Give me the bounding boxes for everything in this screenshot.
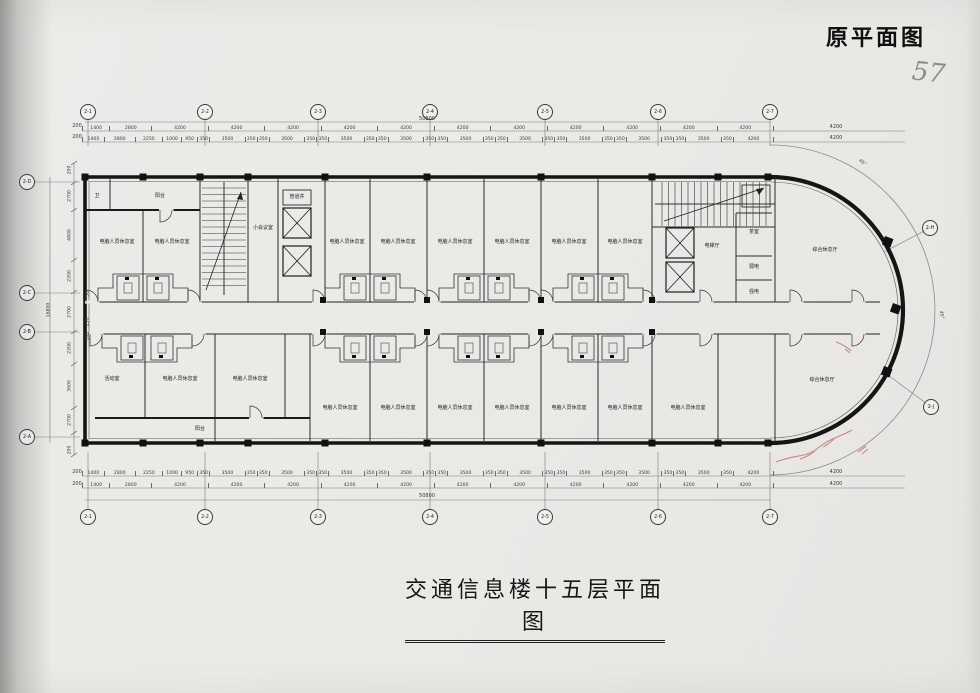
room-label: 综合休息厅 <box>812 247 837 253</box>
dimension-value: 4200 <box>717 126 775 131</box>
room-label: 电脑人员休息室 <box>437 405 472 411</box>
dimension-value: 350 <box>364 137 376 142</box>
dimension-value: 3500 <box>626 137 661 142</box>
dimension-value: 4200 <box>547 483 604 488</box>
dimension-value: 4200 <box>490 483 547 488</box>
dimension-value: 1400 <box>82 471 104 476</box>
dimension-value: 3500 <box>566 471 601 476</box>
dimension-value: 350 <box>721 137 733 142</box>
dimension-value: 950 <box>181 137 197 142</box>
bottom-bay-dimensions: 1400280042004200420042004200420042004200… <box>82 480 774 488</box>
axis-bubble-top: 2-5 <box>537 104 553 120</box>
axis-bubble-bottom: 2-7 <box>762 509 778 525</box>
dimension-value: 350 <box>673 471 685 476</box>
dimension-value: 4200 <box>264 483 321 488</box>
dimension-value: 4200 <box>717 483 775 488</box>
dimension-label: 50800 <box>419 116 435 122</box>
dimension-value: 4200 <box>733 137 774 142</box>
axis-bubble-bottom: 2-2 <box>197 509 213 525</box>
dimension-value: 350 <box>245 471 257 476</box>
dimension-label: 200 <box>72 134 82 140</box>
room-label: 茶室 <box>749 229 759 235</box>
dimension-value: 350 <box>316 471 328 476</box>
dimension-value: 350 <box>483 137 495 142</box>
left-dimension-value: 2200 <box>68 342 73 354</box>
axis-bubble-bottom: 2-5 <box>537 509 553 525</box>
dimension-label: 45° <box>857 158 866 167</box>
room-label: 电脑人员休息室 <box>232 376 267 382</box>
plan-annotation-layer: 2-12-22-32-42-52-62-72-12-22-32-42-52-62… <box>0 0 980 693</box>
room-label: 电脑人员休息室 <box>380 405 415 411</box>
scanned-floor-plan-page: 2-12-22-32-42-52-62-72-12-22-32-42-52-62… <box>0 0 980 693</box>
dimension-value: 350 <box>423 137 435 142</box>
dimension-value: 350 <box>197 471 209 476</box>
room-label: 电脑人员休息室 <box>551 405 586 411</box>
dimension-value: 2250 <box>135 137 162 142</box>
dimension-value: 3500 <box>685 137 720 142</box>
room-label: 电脑人员休息室 <box>322 405 357 411</box>
room-label: 卫 <box>94 193 99 199</box>
dimension-value: 350 <box>614 137 626 142</box>
dimension-value: 350 <box>673 137 685 142</box>
dimension-value: 4200 <box>660 483 717 488</box>
dimension-value: 350 <box>721 471 733 476</box>
dimension-value: 350 <box>435 137 447 142</box>
dimension-value: 3500 <box>507 137 542 142</box>
dimension-value: 350 <box>495 137 507 142</box>
left-dimension-value: 4800 <box>68 229 73 241</box>
axis-bubble-top: 2-2 <box>197 104 213 120</box>
dimension-value: 3500 <box>507 471 542 476</box>
dimension-value: 350 <box>483 471 495 476</box>
room-label: 电梯厅 <box>704 243 719 249</box>
dimension-value: 3500 <box>388 137 423 142</box>
dimension-value: 350 <box>542 137 554 142</box>
room-label: 电脑人员休息室 <box>99 239 134 245</box>
room-label: 电脑人员休息室 <box>551 239 586 245</box>
dimension-value: 350 <box>423 471 435 476</box>
dimension-value: 4200 <box>434 126 491 131</box>
dimension-value: 350 <box>435 471 447 476</box>
axis-bubble-bottom: 2-1 <box>80 509 96 525</box>
room-label: 电脑人员休息室 <box>154 239 189 245</box>
dimension-value: 3500 <box>566 137 601 142</box>
dimension-value: 3500 <box>447 471 482 476</box>
left-dimension-value: 250 <box>86 318 91 327</box>
dimension-value: 3500 <box>269 471 304 476</box>
dimension-value: 4200 <box>377 483 434 488</box>
room-label: 电脑人员休息室 <box>670 405 705 411</box>
dimension-value: 4200 <box>603 126 660 131</box>
dimension-value: 350 <box>364 471 376 476</box>
dimension-value: 350 <box>197 137 209 142</box>
dimension-value: 350 <box>495 471 507 476</box>
dimension-value: 1000 <box>162 137 181 142</box>
dimension-value: 3500 <box>447 137 482 142</box>
bottom-detail-dimensions: 1400280022501000950350350035035035003503… <box>82 468 774 476</box>
dimension-value: 4200 <box>208 126 265 131</box>
dimension-value: 3500 <box>209 137 244 142</box>
dimension-value: 4200 <box>151 483 208 488</box>
dimension-value: 4200 <box>264 126 321 131</box>
dimension-value: 2250 <box>135 471 162 476</box>
dimension-value: 350 <box>661 471 673 476</box>
left-dimension-value: 2700 <box>68 414 73 426</box>
dimension-value: 4200 <box>660 126 717 131</box>
dimension-value: 350 <box>542 471 554 476</box>
room-label: 电脑人员休息室 <box>437 239 472 245</box>
axis-bubble-top: 2-6 <box>650 104 666 120</box>
room-label: 电脑人员休息室 <box>607 405 642 411</box>
room-label: 阳台 <box>155 193 165 199</box>
dimension-value: 1400 <box>82 126 109 131</box>
dimension-value: 350 <box>554 137 566 142</box>
dimension-value: 350 <box>376 137 388 142</box>
dimension-value: 2800 <box>109 126 151 131</box>
axis-bubble-top: 2-7 <box>762 104 778 120</box>
room-label: 电脑人员休息室 <box>380 239 415 245</box>
dimension-value: 350 <box>614 471 626 476</box>
dimension-label: 200 <box>72 123 82 129</box>
room-label: 电脑人员休息室 <box>162 376 197 382</box>
dimension-value: 3500 <box>328 471 363 476</box>
room-label: 强电 <box>749 289 759 295</box>
dimension-value: 4200 <box>603 483 660 488</box>
axis-bubble-left: 2-D <box>19 174 35 190</box>
axis-bubble-top: 2-3 <box>310 104 326 120</box>
dimension-value: 2800 <box>109 483 151 488</box>
dimension-value: 350 <box>245 137 257 142</box>
axis-bubble-bottom: 2-3 <box>310 509 326 525</box>
axis-bubble-bottom: 2-6 <box>650 509 666 525</box>
room-label: 电脑人员休息室 <box>494 239 529 245</box>
axis-bubble-arc: 2-J <box>923 399 939 415</box>
dimension-value: 3500 <box>328 137 363 142</box>
room-label: 综合休息厅 <box>809 377 834 383</box>
room-label: 电脑人员休息室 <box>494 405 529 411</box>
top-detail-dimensions: 1400280022501000950350350035035035003503… <box>82 134 774 142</box>
axis-bubble-left: 2-A <box>19 429 35 445</box>
dimension-value: 4200 <box>434 483 491 488</box>
dimension-label: 200 <box>72 481 82 487</box>
left-dimension-value: 50 <box>86 291 91 297</box>
left-dimension-value: 2700 <box>68 190 73 202</box>
dimension-value: 950 <box>181 471 197 476</box>
dimension-label: 45° <box>938 311 944 320</box>
dimension-value: 350 <box>316 137 328 142</box>
top-bay-dimensions: 1400280042004200420042004200420042004200… <box>82 123 774 131</box>
room-label: 管道井 <box>289 194 304 200</box>
dimension-value: 4200 <box>321 483 378 488</box>
dimension-value: 350 <box>304 471 316 476</box>
dimension-value: 1400 <box>82 137 104 142</box>
left-dimension-value: 200 <box>68 446 73 455</box>
left-dimension-value: 2700 <box>68 306 73 318</box>
room-label: 活动室 <box>104 376 119 382</box>
dimension-value: 4200 <box>208 483 265 488</box>
dimension-value: 4200 <box>490 126 547 131</box>
dimension-value: 3500 <box>269 137 304 142</box>
dimension-label: 4200 <box>830 124 843 130</box>
dimension-value: 350 <box>376 471 388 476</box>
dimension-value: 350 <box>554 471 566 476</box>
axis-bubble-bottom: 2-4 <box>422 509 438 525</box>
room-label: 电脑人员休息室 <box>607 239 642 245</box>
dimension-value: 3500 <box>209 471 244 476</box>
dimension-value: 3500 <box>388 471 423 476</box>
room-label: 阳台 <box>195 426 205 432</box>
room-label: 小会议室 <box>253 225 273 231</box>
dimension-value: 4200 <box>377 126 434 131</box>
room-label: 弱电 <box>749 264 759 270</box>
dimension-value: 350 <box>257 137 269 142</box>
axis-bubble-arc: 2-H <box>922 220 938 236</box>
dimension-value: 350 <box>602 471 614 476</box>
axis-bubble-left: 2-C <box>19 285 35 301</box>
dimension-value: 350 <box>257 471 269 476</box>
dimension-value: 4200 <box>733 471 774 476</box>
dimension-value: 4200 <box>321 126 378 131</box>
dimension-label: 4200 <box>830 481 843 487</box>
dimension-label: 16800 <box>47 303 52 318</box>
axis-bubble-top: 2-1 <box>80 104 96 120</box>
dimension-value: 3500 <box>626 471 661 476</box>
dimension-label: 200 <box>72 469 82 475</box>
dimension-value: 4200 <box>151 126 208 131</box>
left-dimension-value: 200 <box>68 166 73 175</box>
dimension-value: 350 <box>602 137 614 142</box>
dimension-value: 1000 <box>162 471 181 476</box>
room-label: 电脑人员休息室 <box>329 239 364 245</box>
left-dimension-value: 100 <box>86 332 91 341</box>
dimension-value: 2800 <box>104 137 135 142</box>
dimension-label: 4200 <box>830 135 843 141</box>
left-dimension-value: 2200 <box>68 270 73 282</box>
dimension-value: 4200 <box>547 126 604 131</box>
dimension-value: 2800 <box>104 471 135 476</box>
dimension-value: 350 <box>661 137 673 142</box>
dimension-value: 1400 <box>82 483 109 488</box>
dimension-value: 350 <box>304 137 316 142</box>
axis-bubble-left: 2-B <box>19 324 35 340</box>
dimension-label: 4200 <box>830 469 843 475</box>
left-dimension-value: 3600 <box>68 380 73 392</box>
dimension-label: 50800 <box>419 493 435 499</box>
dimension-value: 3500 <box>685 471 720 476</box>
